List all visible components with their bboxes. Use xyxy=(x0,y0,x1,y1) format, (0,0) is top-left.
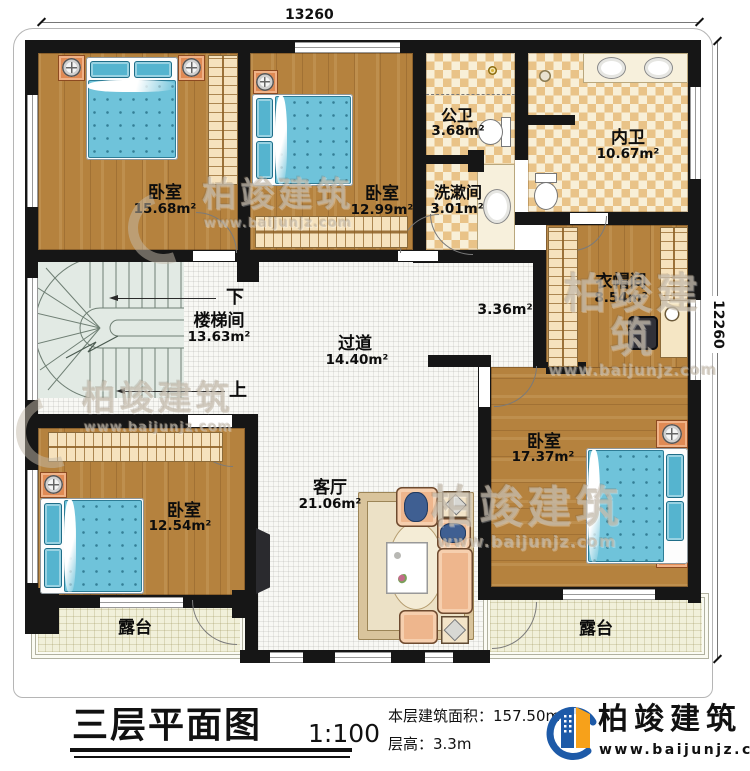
blanket-fold xyxy=(275,96,287,184)
title-underline xyxy=(70,748,352,752)
armchair xyxy=(399,610,438,644)
room-area-master-bath: 10.67m² xyxy=(597,148,660,162)
shower-partition xyxy=(426,94,515,95)
dimension-tick xyxy=(713,654,722,663)
window xyxy=(100,597,183,608)
bed xyxy=(252,94,353,186)
window xyxy=(27,95,38,207)
lamp-icon xyxy=(62,58,81,77)
room-area-cloakroom: 8.54m² xyxy=(594,292,647,306)
sink xyxy=(483,189,511,224)
dimension-width-label: 13260 xyxy=(281,8,338,22)
wall xyxy=(533,250,546,368)
blanket-fold xyxy=(588,450,600,562)
window xyxy=(563,589,655,600)
plan-scale: 1:100 xyxy=(308,721,380,746)
door-opening xyxy=(479,367,490,407)
plan-title: 三层平面图 xyxy=(72,708,262,744)
dimension-tick xyxy=(695,17,704,26)
bed xyxy=(86,57,178,160)
pillow xyxy=(44,503,62,545)
window xyxy=(690,87,701,179)
room-area-hallway: 14.40m² xyxy=(326,354,389,368)
brand-name: 柏竣建筑 xyxy=(598,705,742,735)
window xyxy=(425,652,453,663)
sink xyxy=(597,57,626,79)
blanket-fold xyxy=(64,500,76,592)
room-area-inner-hall: 3.36m² xyxy=(477,303,532,317)
wall xyxy=(515,40,528,160)
nightstand xyxy=(40,472,67,498)
window xyxy=(27,278,38,400)
wall xyxy=(238,40,250,262)
coffee-table xyxy=(386,542,428,594)
room-area-stairwell: 13.63m² xyxy=(188,331,251,345)
person xyxy=(440,523,466,543)
nightstand xyxy=(178,55,205,81)
wall xyxy=(237,258,259,282)
room-area-living: 21.06m² xyxy=(299,498,362,512)
pillow xyxy=(90,61,130,78)
room-label-terrace-right: 露台 xyxy=(579,621,613,638)
stairwell-drawing xyxy=(38,258,184,398)
brand-url: www.baijunjz.com xyxy=(599,743,750,757)
dimension-line-top xyxy=(40,22,700,23)
pillow xyxy=(44,548,62,588)
dimension-height-label: 12260 xyxy=(711,296,725,353)
room-label-washroom: 洗漱间 xyxy=(434,185,482,201)
room-label-living: 客厅 xyxy=(313,480,347,497)
window xyxy=(295,42,400,53)
room-label-bedroom-tm: 卧室 xyxy=(365,186,399,203)
stair-down-label: 下 xyxy=(226,289,244,307)
pillow xyxy=(134,61,172,78)
nightstand xyxy=(656,420,688,448)
room-label-master-bath: 内卫 xyxy=(611,130,645,147)
room-label-hallway: 过道 xyxy=(338,336,372,353)
room-area-bedroom-tl: 15.68m² xyxy=(134,203,197,217)
pillow xyxy=(256,98,273,138)
lamp-icon xyxy=(662,424,682,444)
wall xyxy=(515,212,701,225)
nightstand xyxy=(58,55,85,81)
room-area-bedroom-bl: 12.54m² xyxy=(149,520,212,534)
dressing-table xyxy=(660,300,688,358)
pillow xyxy=(666,454,684,498)
pillow xyxy=(666,501,684,541)
window xyxy=(270,652,303,663)
wall xyxy=(468,150,484,172)
floor-plan-page: 13260 12260 xyxy=(0,0,750,771)
window xyxy=(690,300,701,380)
room-area-public-bath: 3.68m² xyxy=(431,125,484,139)
room-label-stairwell: 楼梯间 xyxy=(194,313,245,330)
bed xyxy=(40,498,144,594)
room-label-bedroom-tl: 卧室 xyxy=(148,185,182,202)
room-area-bedroom-tm: 12.99m² xyxy=(351,204,414,218)
lamp-icon xyxy=(256,73,274,91)
floor-height-text: 层高：3.3m xyxy=(388,736,471,753)
brand-logo-icon xyxy=(538,700,600,762)
wardrobe xyxy=(208,55,238,185)
room-area-washroom: 3.01m² xyxy=(430,203,483,217)
sink xyxy=(644,57,673,79)
toilet xyxy=(534,182,558,210)
blanket-fold xyxy=(88,80,176,92)
wall xyxy=(25,588,59,634)
person xyxy=(404,492,428,522)
lamp-icon xyxy=(182,58,201,77)
stair-down-arrow xyxy=(118,298,216,299)
nightstand xyxy=(253,70,278,94)
shower-head-icon xyxy=(539,70,551,82)
bed xyxy=(586,448,688,564)
stair-up-label: 上 xyxy=(229,382,247,400)
side-table xyxy=(441,616,469,644)
room-label-cloakroom: 衣帽间 xyxy=(596,274,647,291)
room-area-bedroom-br: 17.37m² xyxy=(512,451,575,465)
lamp-icon xyxy=(44,475,63,494)
wardrobe xyxy=(255,216,408,248)
window xyxy=(27,470,38,583)
wardrobe xyxy=(48,432,223,462)
stair-up-arrow xyxy=(125,391,225,392)
sofa xyxy=(437,548,473,614)
wall xyxy=(515,115,575,125)
wardrobe xyxy=(548,227,578,367)
tv xyxy=(256,528,270,594)
side-table xyxy=(442,491,470,518)
room-label-public-bath: 公卫 xyxy=(441,108,473,124)
title-underline xyxy=(74,756,350,758)
dressing-stool xyxy=(628,316,658,350)
room-label-terrace-left: 露台 xyxy=(118,620,152,637)
window xyxy=(335,652,391,663)
pillow xyxy=(256,141,273,179)
ceiling-lamp-icon xyxy=(488,66,497,75)
